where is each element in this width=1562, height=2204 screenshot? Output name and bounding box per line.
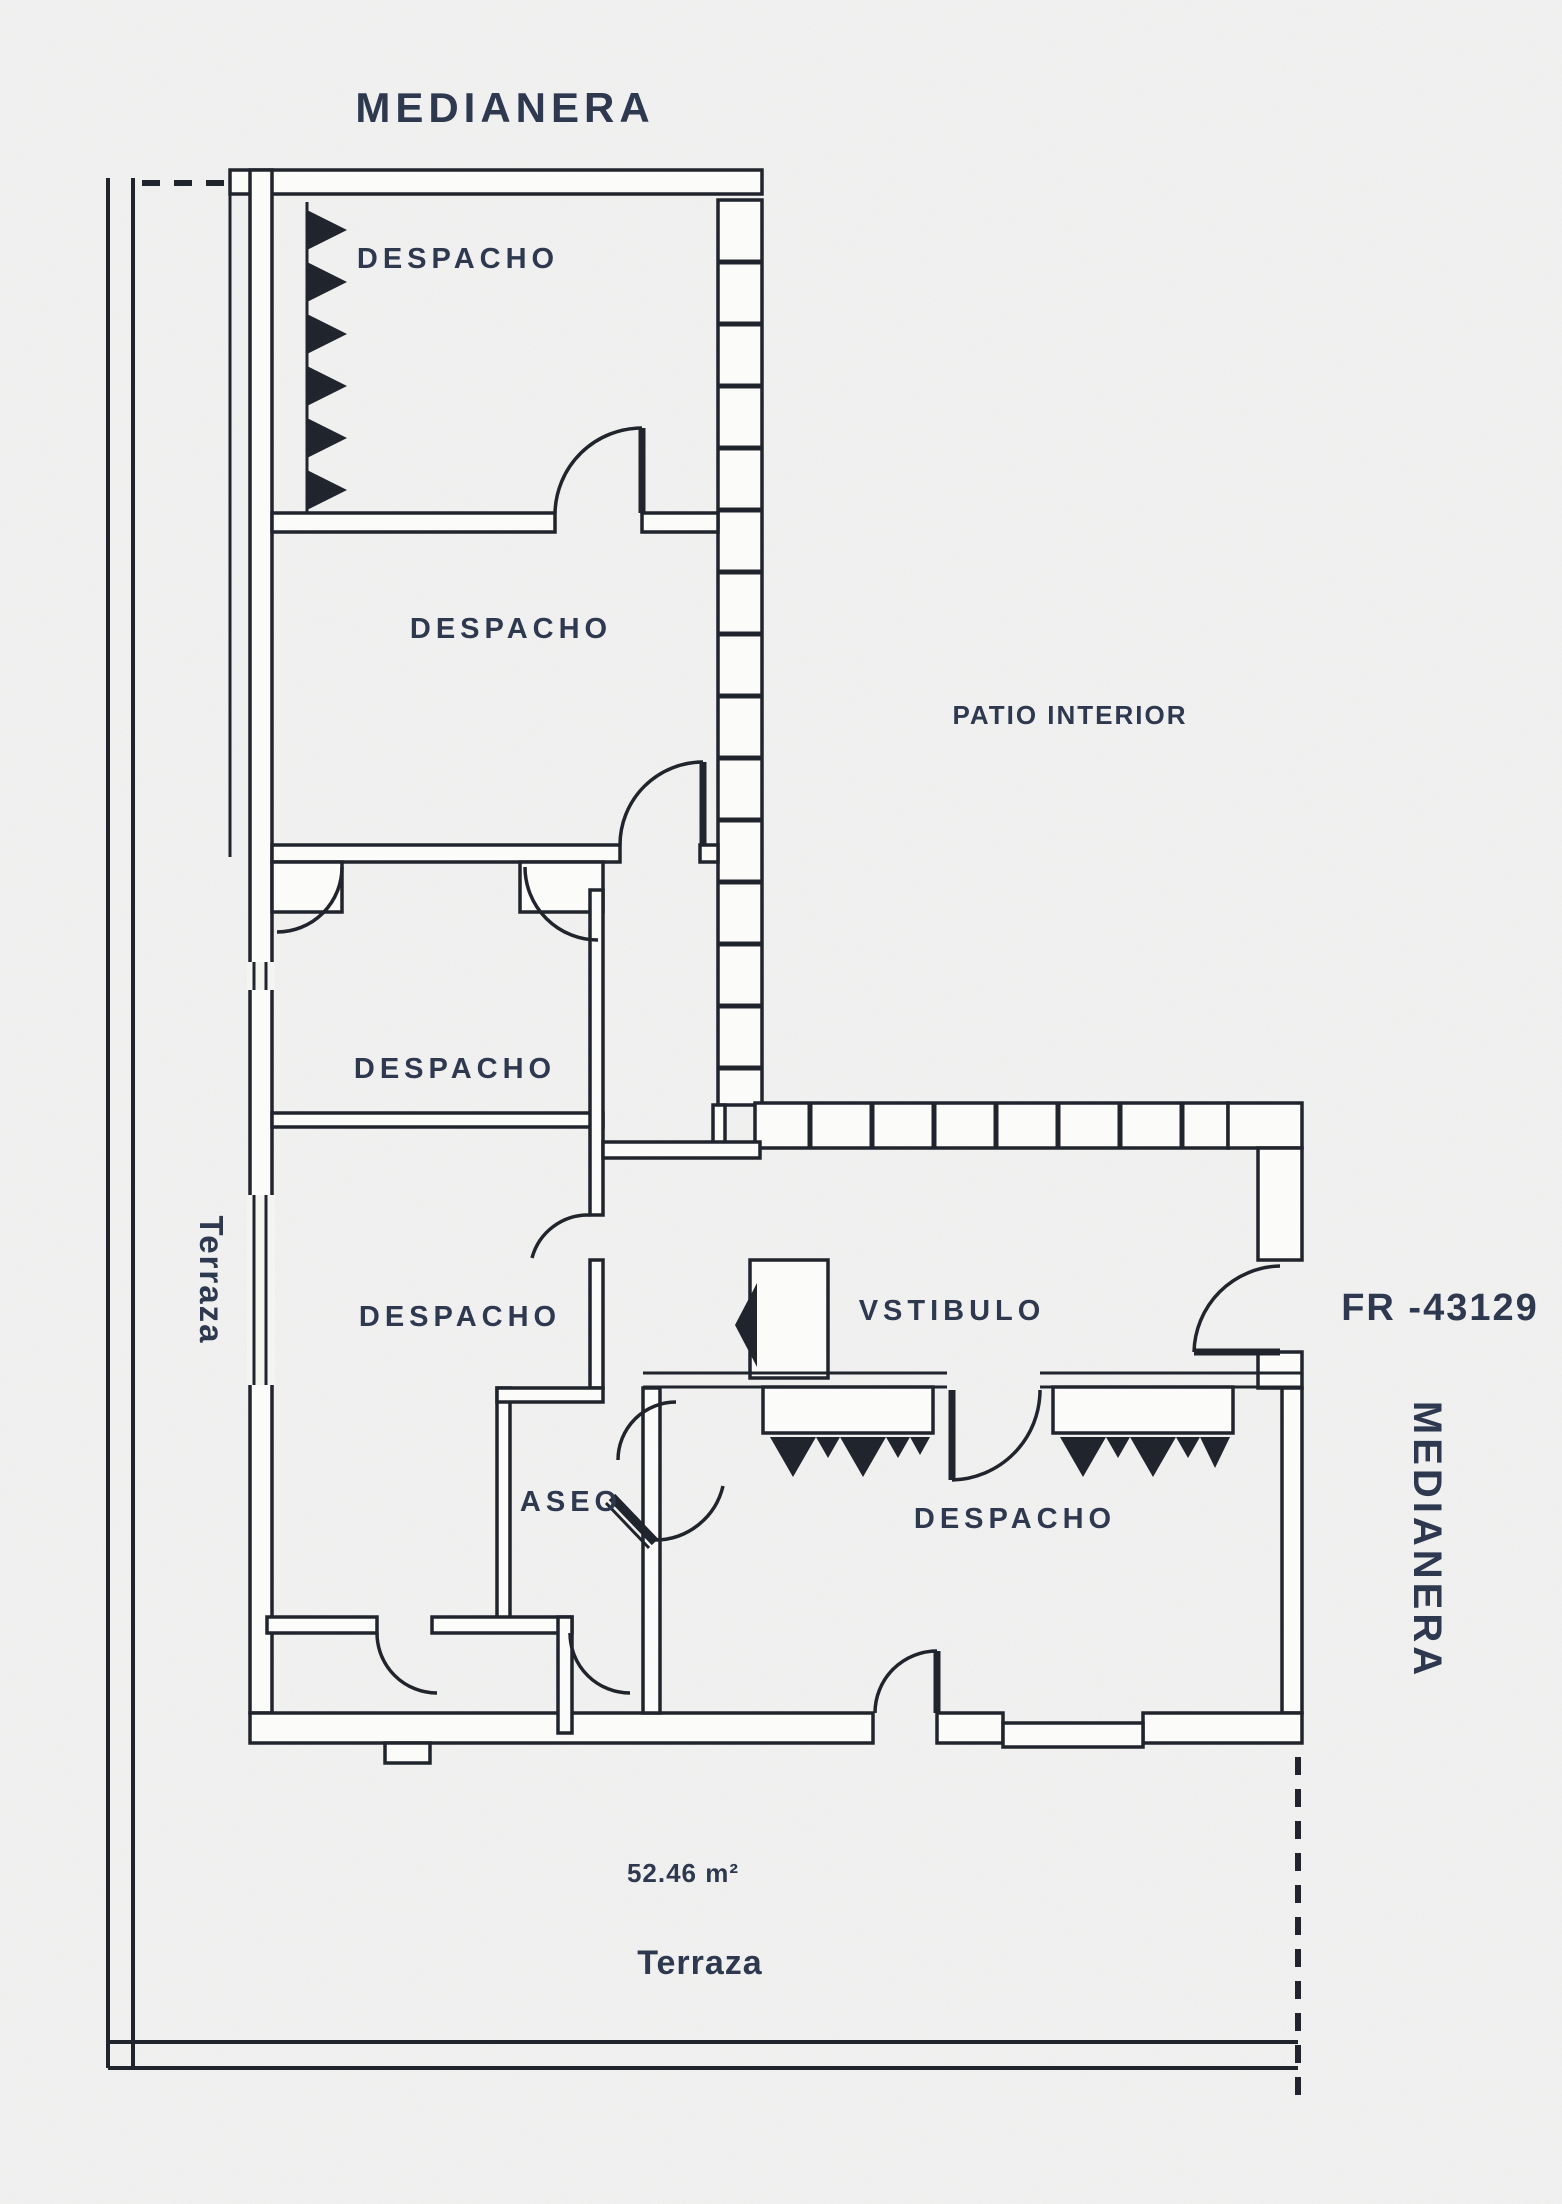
property-reference-label: FR -43129 xyxy=(1341,1287,1539,1329)
vestibulo-label: VSTIBULO xyxy=(859,1295,1046,1327)
room-label-despacho-5: DESPACHO xyxy=(914,1503,1116,1535)
patio-interior-label: PATIO INTERIOR xyxy=(952,700,1187,730)
scanned-floor-plan-page: MEDIANERA DESPACHO DESPACHO PATIO INTERI… xyxy=(0,0,1562,2204)
terraza-left-label: Terraza xyxy=(193,1216,230,1345)
room-label-despacho-2: DESPACHO xyxy=(410,613,612,645)
terraza-bottom-label: Terraza xyxy=(637,1944,763,1982)
aseo-label: ASEO xyxy=(520,1486,622,1518)
medianera-right-label: MEDIANERA xyxy=(1405,1401,1449,1679)
floor-plan-drawing: MEDIANERA DESPACHO DESPACHO PATIO INTERI… xyxy=(0,0,1562,2204)
room-label-despacho-1: DESPACHO xyxy=(357,243,559,275)
room-label-despacho-3: DESPACHO xyxy=(354,1053,556,1085)
room-label-despacho-4: DESPACHO xyxy=(359,1301,561,1333)
medianera-top-label: MEDIANERA xyxy=(355,84,654,131)
terrace-area-label: 52.46 m² xyxy=(627,1858,739,1888)
